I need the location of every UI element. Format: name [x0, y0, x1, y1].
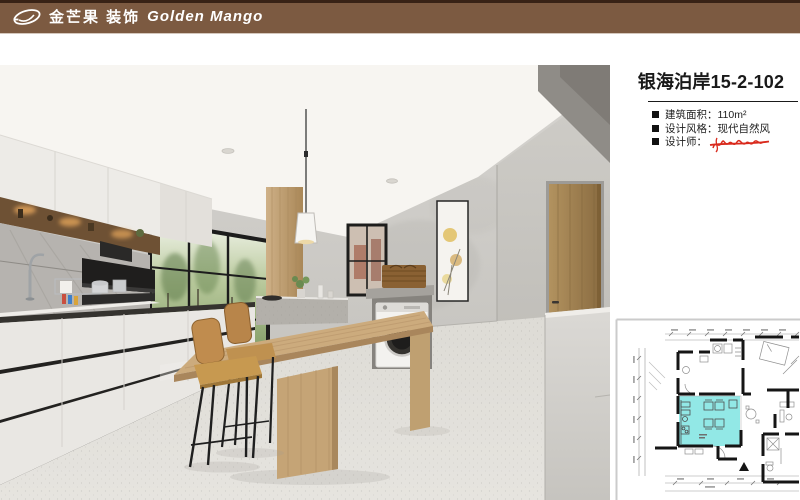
brand-logo: 金芒果 装饰 Golden Mango — [12, 6, 263, 27]
stair-half-wall — [545, 307, 610, 500]
plan-highlight-room — [679, 396, 740, 446]
brand-header-bar: 金芒果 装饰 Golden Mango — [0, 0, 800, 34]
fruit-bowl — [262, 295, 282, 300]
spec-list: 建筑面积： 110m² 设计风格： 现代自然风 设计师： — [612, 108, 800, 149]
interior-scene — [0, 65, 610, 500]
brand-name-cn: 金芒果 装饰 — [49, 6, 140, 27]
door-handle — [552, 301, 559, 304]
square-bullet — [652, 111, 659, 118]
project-title: 银海泊岸15-2-102 — [622, 68, 800, 94]
wall-artwork — [437, 201, 468, 301]
golden-mango-logo-icon — [12, 7, 42, 27]
presentation-slide: 金芒果 装饰 Golden Mango — [0, 0, 800, 500]
recessed-light — [222, 149, 234, 154]
spec-row-designer: 设计师： — [652, 135, 800, 149]
towel — [60, 281, 72, 293]
spec-row-area: 建筑面积： 110m² — [652, 108, 800, 122]
floor-plan-drawing — [615, 318, 800, 500]
brand-name-en: Golden Mango — [147, 8, 263, 25]
recessed-light — [387, 179, 398, 183]
designer-signature — [709, 135, 771, 153]
island-plant — [292, 276, 298, 282]
header-top-strip — [0, 0, 800, 3]
plan-marker — [739, 462, 749, 471]
interior-rendering-photo: GOLDEN MANGO DECORATION 金芒果装饰 — [0, 65, 610, 500]
title-divider — [648, 101, 798, 102]
floor-plan — [615, 318, 800, 500]
wood-door — [546, 181, 604, 319]
spec-row-style: 设计风格： 现代自然风 — [652, 122, 800, 136]
project-info-panel: 银海泊岸15-2-102 建筑面积： 110m² 设计风格： 现代自然风 设计师… — [612, 62, 800, 149]
square-bullet — [652, 138, 659, 145]
small-window — [348, 225, 386, 295]
shelf-plant — [136, 229, 144, 237]
plan-hatch — [649, 362, 665, 390]
square-bullet — [652, 125, 659, 132]
